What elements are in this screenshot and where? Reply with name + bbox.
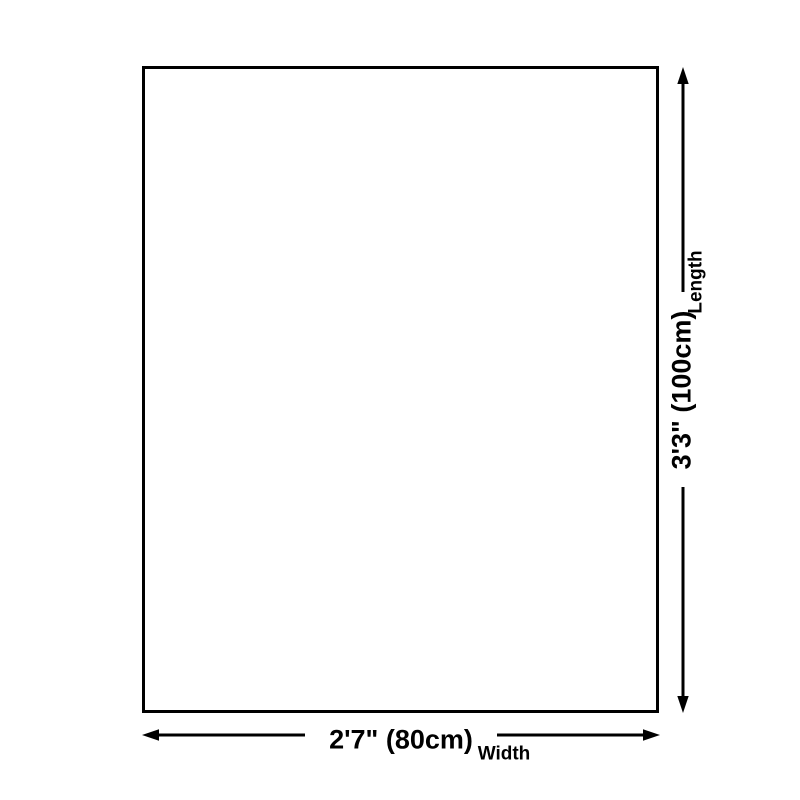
length-value: 3'3" (100cm) [669, 311, 696, 470]
dimension-diagram: 3'3" (100cm) Length 2'7" (80cm) Width [0, 0, 800, 800]
length-arrowhead-bottom [677, 696, 688, 713]
length-label: Length [687, 250, 706, 313]
width-label: Width [478, 745, 531, 764]
width-arrowhead-right [643, 729, 660, 740]
width-value: 2'7" (80cm) [329, 727, 473, 754]
